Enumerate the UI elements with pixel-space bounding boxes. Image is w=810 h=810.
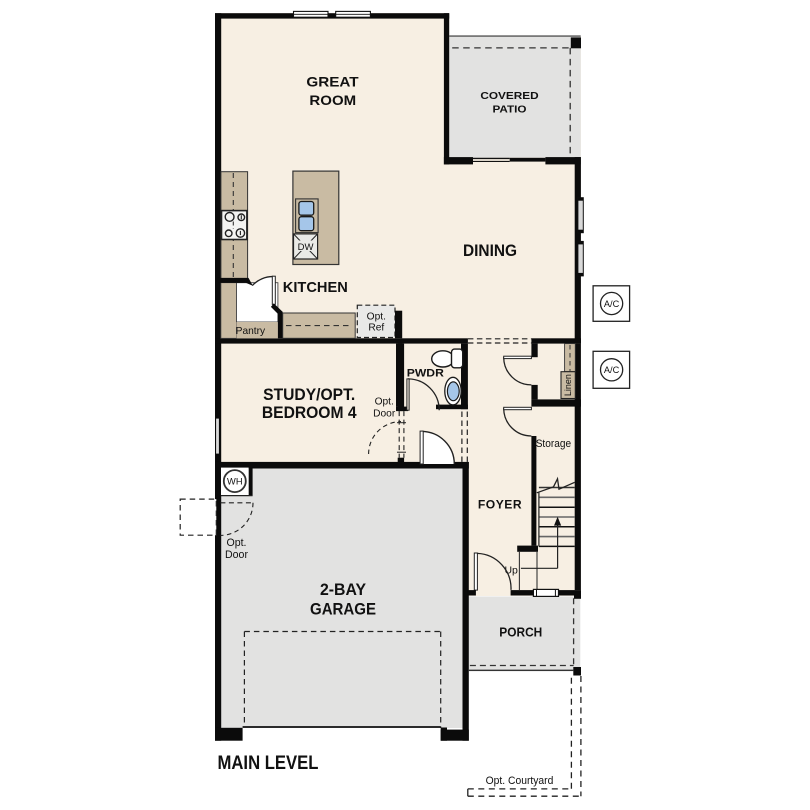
svg-text:DW: DW: [298, 242, 314, 253]
svg-text:GARAGE: GARAGE: [310, 601, 376, 619]
svg-text:Opt. Courtyard: Opt. Courtyard: [486, 775, 554, 787]
svg-text:A/C: A/C: [604, 299, 620, 309]
svg-text:BEDROOM 4: BEDROOM 4: [262, 404, 357, 422]
svg-text:PORCH: PORCH: [499, 626, 542, 640]
svg-text:KITCHEN: KITCHEN: [283, 280, 348, 296]
svg-text:ROOM: ROOM: [309, 92, 356, 108]
svg-text:PWDR: PWDR: [407, 368, 444, 380]
svg-text:PATIO: PATIO: [493, 105, 527, 116]
svg-text:Pantry: Pantry: [236, 326, 266, 337]
svg-text:2-BAY: 2-BAY: [320, 581, 366, 599]
svg-text:A/C: A/C: [604, 365, 620, 375]
svg-text:Opt.: Opt.: [375, 397, 394, 408]
svg-text:Ref: Ref: [368, 322, 384, 333]
svg-text:Linen: Linen: [563, 374, 573, 396]
svg-text:Opt.: Opt.: [367, 311, 386, 322]
svg-text:DINING: DINING: [463, 242, 517, 260]
svg-text:STUDY/OPT.: STUDY/OPT.: [263, 386, 355, 404]
svg-text:MAIN LEVEL: MAIN LEVEL: [218, 752, 319, 774]
svg-text:Storage: Storage: [536, 438, 571, 450]
svg-text:Door: Door: [225, 549, 248, 561]
svg-text:WH: WH: [227, 476, 243, 486]
svg-text:Opt.: Opt.: [226, 537, 246, 549]
svg-text:GREAT: GREAT: [306, 73, 359, 89]
svg-text:FOYER: FOYER: [478, 498, 522, 512]
svg-text:Door: Door: [373, 408, 396, 419]
svg-text:COVERED: COVERED: [480, 91, 538, 102]
